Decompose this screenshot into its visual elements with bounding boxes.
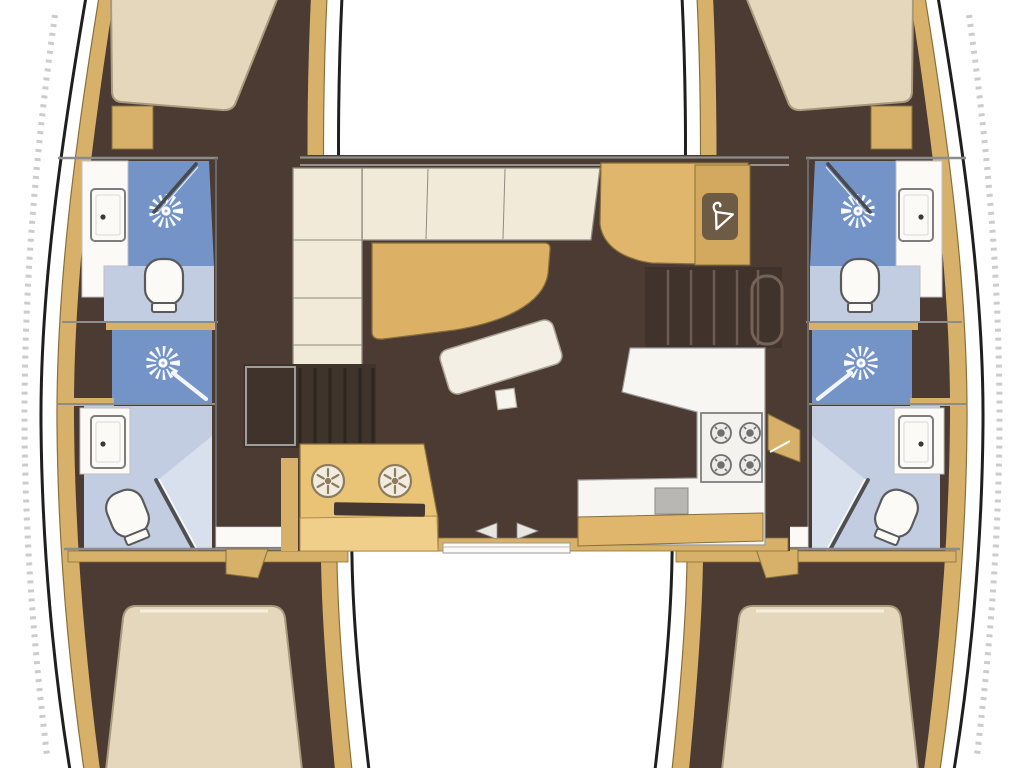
side-stool (495, 388, 516, 409)
sofa-side-cushions (293, 168, 362, 368)
floorplan-svg (0, 0, 1024, 768)
console-slot (334, 502, 425, 517)
port-companionway-stairs (243, 364, 376, 448)
hanging-locker-icon-bg (702, 193, 738, 240)
console-side-strip (281, 458, 298, 551)
sliding-door-track (443, 543, 570, 553)
salon (243, 155, 800, 553)
sofa-back-cushions (362, 168, 600, 240)
catamaran-floorplan (0, 0, 1024, 768)
console-front-face (300, 516, 438, 551)
galley-counter-front (578, 513, 763, 546)
galley-sink-basin (655, 488, 688, 514)
